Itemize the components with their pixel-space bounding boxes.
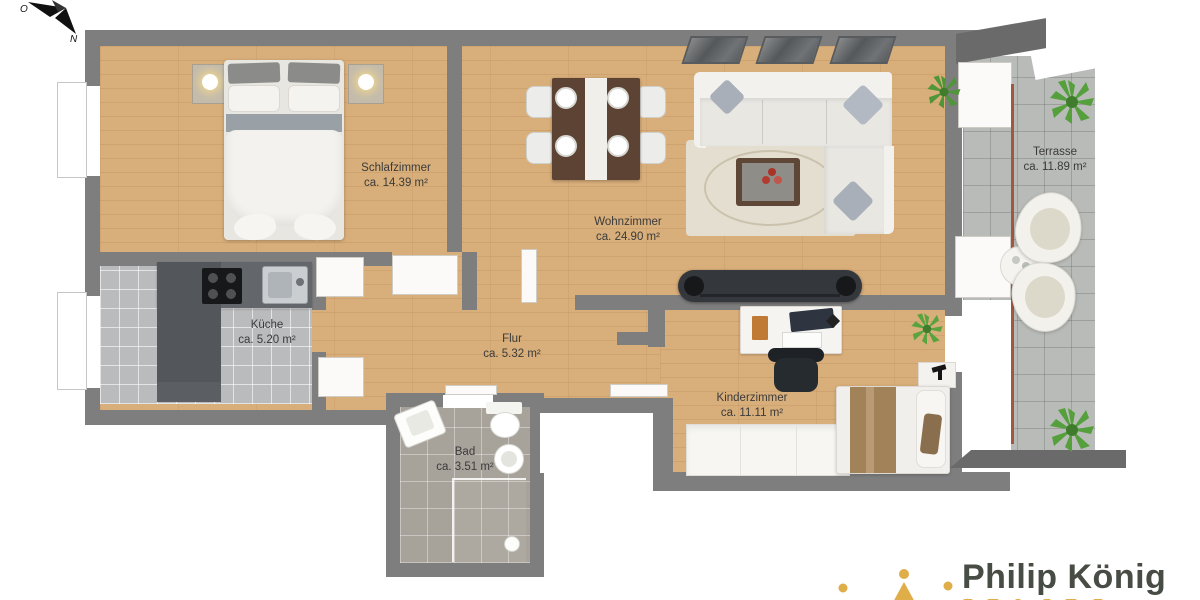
skylight-window-3 xyxy=(829,36,896,64)
room-area: ca. 24.90 m² xyxy=(594,230,662,245)
bedside-lamp xyxy=(358,74,374,90)
door-kitchen-lower xyxy=(318,357,364,397)
wall-terrace-bottom xyxy=(950,450,1126,468)
cooktop xyxy=(202,268,242,304)
door-kinderzimmer xyxy=(610,384,668,397)
floor-plan: Schlafzimmer ca. 14.39 m² Wohnzimmer ca.… xyxy=(0,0,1200,600)
paper xyxy=(782,332,822,348)
wall-flur-stub xyxy=(462,252,477,310)
room-name: Wohnzimmer xyxy=(594,215,662,230)
room-label-schlafzimmer: Schlafzimmer ca. 14.39 m² xyxy=(361,161,431,191)
door-bedroom xyxy=(392,255,458,295)
room-label-terrasse: Terrasse ca. 11.89 m² xyxy=(1023,145,1086,175)
room-label-kueche: Küche ca. 5.20 m² xyxy=(238,318,296,348)
door-living xyxy=(521,249,537,303)
door-kitchen-upper xyxy=(316,257,364,297)
plate xyxy=(555,87,577,109)
plant-icon xyxy=(1048,406,1096,454)
plate xyxy=(555,135,577,157)
dining-chair xyxy=(640,86,666,118)
bed-pillow-white xyxy=(288,85,340,112)
bed-duvet xyxy=(226,130,342,226)
plant-icon xyxy=(1048,78,1096,126)
room-label-kinderzimmer: Kinderzimmer ca. 11.11 m² xyxy=(717,391,788,421)
decor-cup xyxy=(768,168,776,176)
bed-pillow-dark xyxy=(228,62,281,84)
window-sill-kitchen xyxy=(57,292,87,390)
sofa-seam xyxy=(762,100,763,144)
room-area: ca. 5.32 m² xyxy=(483,347,541,362)
plant-icon xyxy=(910,312,944,346)
toilet xyxy=(490,412,520,438)
exterior-notch xyxy=(540,413,653,473)
room-name: Küche xyxy=(238,318,296,333)
bedside-lamp xyxy=(202,74,218,90)
window-kitchen xyxy=(85,296,100,388)
dining-chair xyxy=(526,132,552,164)
piano-stool xyxy=(836,276,856,296)
table-runner xyxy=(585,78,607,180)
plant-icon xyxy=(926,74,962,110)
window-bedroom xyxy=(85,86,100,176)
room-label-bad: Bad ca. 3.51 m² xyxy=(436,445,494,475)
logo-subtext-partial xyxy=(963,591,1173,600)
glass xyxy=(1012,256,1020,264)
egg-chair-cushion xyxy=(1025,276,1065,318)
wall-bottom-left xyxy=(85,410,390,425)
room-area: ca. 11.11 m² xyxy=(717,406,788,421)
room-area: ca. 3.51 m² xyxy=(436,460,494,475)
terrace-notch xyxy=(963,300,1011,456)
room-label-flur: Flur ca. 5.32 m² xyxy=(483,332,541,362)
decor-cup xyxy=(762,176,770,184)
plate xyxy=(607,87,629,109)
room-name: Flur xyxy=(483,332,541,347)
piano xyxy=(678,270,862,302)
room-name: Bad xyxy=(436,445,494,460)
round-basin-bowl xyxy=(501,451,517,467)
window-sill-bedroom xyxy=(57,82,87,178)
compass-o-label: O xyxy=(20,4,28,15)
room-name: Terrasse xyxy=(1023,145,1086,160)
bed-pillow-white xyxy=(228,85,280,112)
sofa-seam xyxy=(826,100,827,144)
piano-stool xyxy=(684,276,704,296)
bed-pillow-dark xyxy=(288,62,341,84)
decor-cup xyxy=(774,176,782,184)
desk-lamp-stem xyxy=(938,370,942,380)
plate xyxy=(607,135,629,157)
crown-icon xyxy=(834,566,974,600)
wall-bedroom-living xyxy=(447,46,462,252)
skylight-window-2 xyxy=(755,36,822,64)
room-area: ca. 11.89 m² xyxy=(1023,160,1086,175)
room-label-wohnzimmer: Wohnzimmer ca. 24.90 m² xyxy=(594,215,662,245)
wardrobe xyxy=(686,424,850,476)
sliding-door-terrace-upper xyxy=(958,62,1012,128)
piano-keys xyxy=(700,294,840,297)
dining-chair xyxy=(640,132,666,164)
compass-n-label: N xyxy=(70,34,78,44)
shower-drain xyxy=(504,536,520,552)
office-chair xyxy=(774,358,818,392)
room-area: ca. 5.20 m² xyxy=(238,333,296,348)
compass-icon: O N xyxy=(8,0,90,44)
door-bath xyxy=(445,385,497,395)
wall-kinder-left-ell xyxy=(617,332,665,345)
book xyxy=(752,316,768,340)
room-name: Schlafzimmer xyxy=(361,161,431,176)
egg-chair-cushion xyxy=(1030,208,1070,250)
sink-bowl xyxy=(268,272,292,298)
room-area: ca. 14.39 m² xyxy=(361,176,431,191)
dining-chair xyxy=(526,86,552,118)
skylight-window-1 xyxy=(681,36,748,64)
terrace-top-cut xyxy=(1027,10,1163,80)
bed-blanket-stripe xyxy=(866,387,874,473)
sofa-chaise-arm xyxy=(884,146,894,234)
faucet xyxy=(296,278,304,286)
wardrobe-seam xyxy=(740,424,741,476)
wardrobe-seam xyxy=(796,424,797,476)
room-name: Kinderzimmer xyxy=(717,391,788,406)
wall-flur-bottom xyxy=(540,398,655,413)
